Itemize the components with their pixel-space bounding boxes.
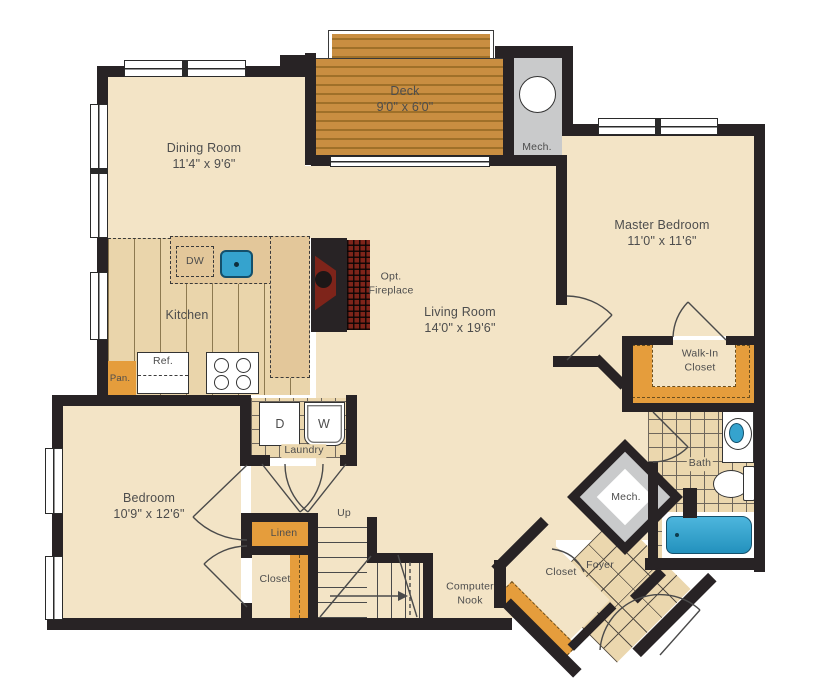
water-heater-icon xyxy=(519,76,556,113)
room-label-mech-upper: Mech. xyxy=(522,141,552,155)
sliding-door-deck xyxy=(330,156,490,167)
room-label-bedroom-closet: Closet xyxy=(260,573,291,587)
window-kitchen-left xyxy=(90,272,108,340)
room-label-computer-nook: ComputerNook xyxy=(446,580,494,607)
wall-master-left-stub xyxy=(553,356,598,367)
label-stairs-up: Up xyxy=(337,507,351,521)
ref-dash-line xyxy=(138,375,188,376)
bathtub-icon xyxy=(666,516,752,554)
wall-mech-bath-join xyxy=(683,488,697,518)
floor-plan: Deck9'0" x 6'0" Mech. Dining Room11'4" x… xyxy=(0,0,817,684)
shelf-dash-line xyxy=(299,555,300,618)
kitchen-sink-icon xyxy=(220,250,253,278)
dining-living-opening-floor xyxy=(305,166,316,238)
window-bedroom-left-upper xyxy=(45,448,63,514)
wall-closet-left-b xyxy=(241,603,252,618)
label-dryer: D xyxy=(275,416,284,432)
bedroom-closet-shelf xyxy=(290,555,308,618)
wall-linen-top xyxy=(241,513,318,522)
label-pantry: Pan. xyxy=(110,373,130,385)
wall-master-left xyxy=(556,155,567,305)
fireplace-brick xyxy=(347,240,370,330)
wall-stairs-right xyxy=(423,553,433,618)
room-label-living: Living Room14'0" x 19'6" xyxy=(424,304,496,337)
room-label-walk-in-closet: Walk-InCloset xyxy=(682,347,719,374)
wall-bath-west xyxy=(648,462,658,558)
wall-stairs-left xyxy=(308,522,318,618)
label-washer: W xyxy=(318,416,330,432)
wall-walkin-bottom xyxy=(622,403,755,412)
label-refrigerator: Ref. xyxy=(153,355,173,369)
wall-foyer-join xyxy=(494,560,506,608)
label-linen: Linen xyxy=(271,527,298,541)
room-label-bedroom: Bedroom10'9" x 12'6" xyxy=(113,490,184,523)
room-label-bath: Bath xyxy=(687,457,713,471)
window-bedroom-left-lower xyxy=(45,556,63,620)
stove-icon xyxy=(206,352,259,394)
room-label-foyer-closet: Closet xyxy=(546,566,577,580)
wall-bedroom-top xyxy=(55,395,251,406)
wall-mech-left xyxy=(503,46,514,165)
room-label-laundry: Laundry xyxy=(281,444,326,458)
stairs-upper-run xyxy=(377,563,423,618)
hall-strip-floor xyxy=(251,466,316,513)
wall-linen-bottom xyxy=(241,546,318,555)
wall-walkin-top-b xyxy=(726,336,755,345)
wall-walkin-left xyxy=(622,340,633,403)
room-label-deck: Deck9'0" x 6'0" xyxy=(377,83,434,116)
room-label-master: Master Bedroom11'0" x 11'6" xyxy=(614,217,709,250)
room-label-mech-foyer: Mech. xyxy=(611,491,641,505)
fireplace-flue xyxy=(315,271,332,288)
window-master-top xyxy=(598,118,718,135)
wall-bath-bottom xyxy=(645,558,765,570)
wall-outer-right xyxy=(754,124,765,572)
wall-mech-right xyxy=(562,46,573,136)
room-label-dining: Dining Room11'4" x 9'6" xyxy=(167,140,241,173)
wall-laundry-bottom-b xyxy=(340,455,357,466)
window-dining-left xyxy=(90,104,108,238)
label-opt-fireplace: Opt.Fireplace xyxy=(369,270,414,297)
wall-deck-left xyxy=(305,53,316,165)
label-dishwasher: DW xyxy=(186,255,204,269)
wall-walkin-top-a xyxy=(622,336,673,345)
bath-sink-icon xyxy=(724,418,752,450)
wall-laundry-bottom-a xyxy=(240,455,270,466)
kitchen-counter-return xyxy=(270,236,310,378)
room-label-foyer: Foyer xyxy=(586,559,614,573)
window-dining-top xyxy=(124,60,246,77)
wall-bottom xyxy=(47,618,512,630)
stairs-lower-run xyxy=(318,527,367,618)
room-label-kitchen: Kitchen xyxy=(165,307,208,323)
